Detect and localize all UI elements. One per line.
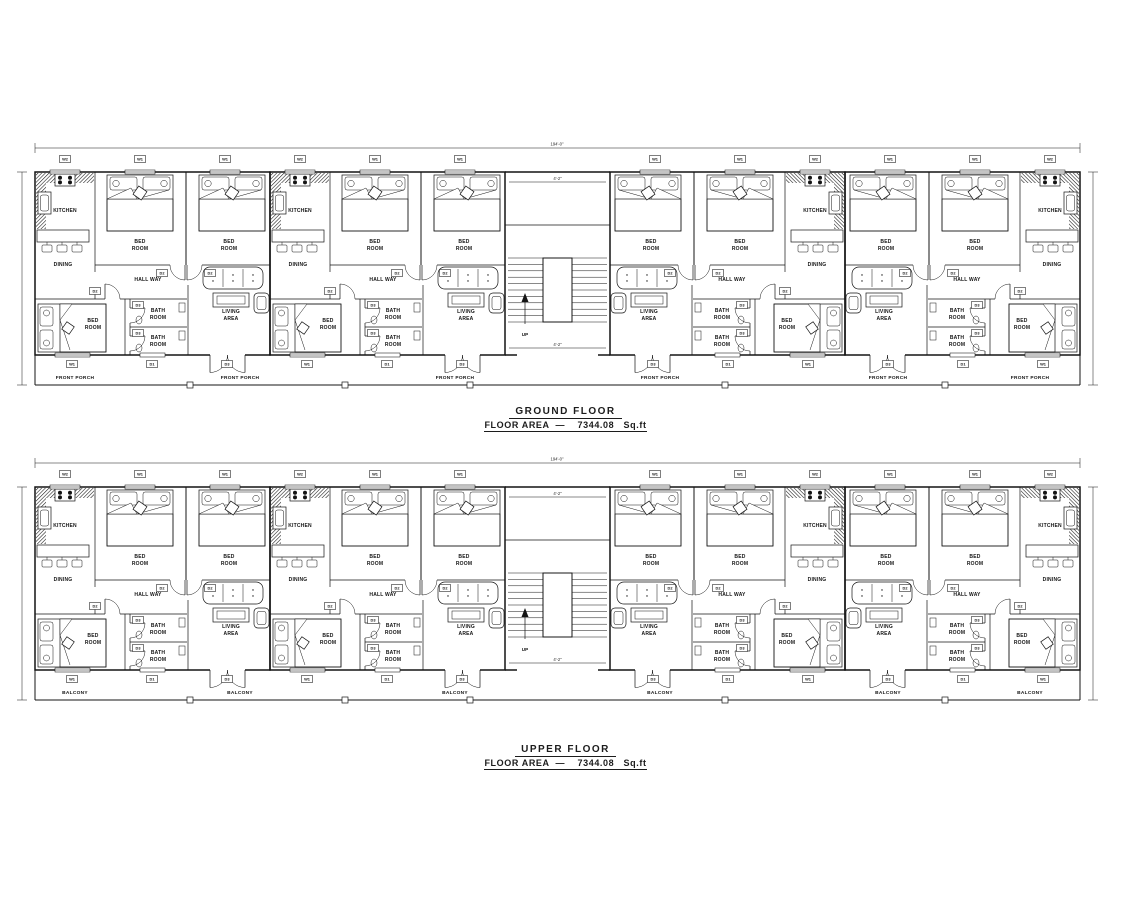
svg-text:W1: W1 xyxy=(69,362,76,367)
room-label-bathroom: ROOM xyxy=(949,342,965,348)
svg-text:D3: D3 xyxy=(225,677,231,682)
door-tag-d2: D2 xyxy=(1015,288,1026,295)
room-label-kitchen: KITCHEN xyxy=(53,523,77,529)
room-label-hallway: HALL WAY xyxy=(953,277,981,283)
svg-text:D3: D3 xyxy=(651,362,657,367)
svg-text:W1: W1 xyxy=(887,472,894,477)
room-label-living: LIVING xyxy=(875,624,893,630)
room-label-bathroom: BATH xyxy=(386,623,401,629)
svg-text:D1: D1 xyxy=(385,677,391,682)
room-label-bathroom: BATH xyxy=(386,650,401,656)
svg-text:D2: D2 xyxy=(783,289,789,294)
svg-text:D2: D2 xyxy=(951,586,957,591)
floor-area-value: 7344.08 xyxy=(578,420,615,432)
room-label-bedroom: BED xyxy=(880,239,891,245)
window-tag-w2: W2 xyxy=(1045,156,1056,163)
floor-title: GROUND FLOOR xyxy=(509,406,621,419)
ground-floor-title-block: GROUND FLOOR FLOOR AREA — 7344.08 Sq.ft xyxy=(433,401,698,430)
svg-text:D2: D2 xyxy=(328,289,334,294)
room-label-bathroom: ROOM xyxy=(714,630,730,636)
window-tag-w1: W1 xyxy=(220,156,231,163)
room-label-bedroom: BED xyxy=(134,239,145,245)
room-label-bedroom: ROOM xyxy=(367,246,383,252)
door-tag-d2: D2 xyxy=(325,603,336,610)
window-tag-w1: W1 xyxy=(370,471,381,478)
window-tag-w2: W2 xyxy=(295,471,306,478)
room-label-bedroom: ROOM xyxy=(132,561,148,567)
room-label-kitchen: KITCHEN xyxy=(53,208,77,214)
plan-canvas: UP 4'-2" 4'-2" 194'-0" xyxy=(0,0,1140,912)
floor-area-unit: Sq.ft xyxy=(624,758,647,770)
room-label-living: LIVING xyxy=(640,309,658,315)
room-label-bedroom: BED xyxy=(1016,633,1027,639)
svg-text:D2: D2 xyxy=(716,586,722,591)
window-tag-w1: W1 xyxy=(67,361,78,368)
window-tag-w1: W1 xyxy=(735,471,746,478)
room-label-bedroom: ROOM xyxy=(85,640,101,646)
room-label-bedroom: ROOM xyxy=(221,246,237,252)
floor-frame xyxy=(17,457,1098,704)
room-label-bathroom: ROOM xyxy=(150,342,166,348)
room-label-dining: DINING xyxy=(289,262,308,268)
svg-text:D3: D3 xyxy=(371,618,377,623)
door-tag-d3: D3 xyxy=(883,361,894,368)
room-label-dining: DINING xyxy=(54,262,73,268)
room-label-living: LIVING xyxy=(875,309,893,315)
door-tag-d3: D3 xyxy=(133,617,144,624)
svg-text:D1: D1 xyxy=(385,362,391,367)
room-label-kitchen: KITCHEN xyxy=(288,523,312,529)
room-label-dining: DINING xyxy=(54,577,73,583)
room-label-bathroom: BATH xyxy=(950,335,965,341)
room-label-bedroom: BED xyxy=(781,318,792,324)
door-tag-d3: D3 xyxy=(972,645,983,652)
door-tag-d3: D3 xyxy=(972,302,983,309)
room-label-bedroom: BED xyxy=(223,554,234,560)
room-label-living: AREA xyxy=(459,316,474,322)
room-label-bathroom: BATH xyxy=(715,623,730,629)
room-label-bedroom: ROOM xyxy=(967,561,983,567)
room-label-bedroom: ROOM xyxy=(320,640,336,646)
room-label-bedroom: BED xyxy=(645,554,656,560)
svg-text:D2: D2 xyxy=(395,586,401,591)
svg-text:D1: D1 xyxy=(726,362,732,367)
room-label-hallway: HALL WAY xyxy=(134,277,162,283)
room-label-dining: DINING xyxy=(1043,577,1062,583)
door-tag-d1: D1 xyxy=(958,361,969,368)
floor-area-line: FLOOR AREA — 7344.08 Sq.ft xyxy=(433,758,698,768)
floor-area-label: FLOOR AREA — xyxy=(484,758,565,770)
door-tag-d3: D3 xyxy=(368,645,379,652)
window-tag-w1: W1 xyxy=(455,156,466,163)
room-label-bedroom: BED xyxy=(87,633,98,639)
svg-text:D3: D3 xyxy=(740,303,746,308)
room-label-hallway: HALL WAY xyxy=(718,592,746,598)
window-tag-w1: W1 xyxy=(370,156,381,163)
window-tag-w1: W1 xyxy=(220,471,231,478)
room-label-bedroom: ROOM xyxy=(456,561,472,567)
room-label-bathroom: BATH xyxy=(715,308,730,314)
window-tag-w1: W1 xyxy=(650,471,661,478)
svg-text:W2: W2 xyxy=(812,157,819,162)
window-tag-w1: W1 xyxy=(885,156,896,163)
porch-label: BALCONY xyxy=(647,690,673,696)
svg-text:W1: W1 xyxy=(1040,677,1047,682)
door-tag-d2: D2 xyxy=(665,585,676,592)
room-label-bedroom: BED xyxy=(734,554,745,560)
room-label-bathroom: BATH xyxy=(950,623,965,629)
door-tag-d1: D1 xyxy=(382,676,393,683)
room-label-bedroom: BED xyxy=(322,633,333,639)
room-label-kitchen: KITCHEN xyxy=(1038,208,1062,214)
room-label-bedroom: BED xyxy=(458,554,469,560)
window-tag-w2: W2 xyxy=(1045,471,1056,478)
svg-text:D3: D3 xyxy=(975,618,981,623)
door-tag-d3: D3 xyxy=(368,330,379,337)
door-tag-d3: D3 xyxy=(222,676,233,683)
door-tag-d3: D3 xyxy=(883,676,894,683)
floor-frame xyxy=(17,142,1098,389)
svg-text:D3: D3 xyxy=(886,677,892,682)
door-tag-d2: D2 xyxy=(780,603,791,610)
room-label-bedroom: ROOM xyxy=(967,246,983,252)
room-label-bedroom: ROOM xyxy=(132,246,148,252)
svg-text:W2: W2 xyxy=(1047,157,1054,162)
svg-text:W1: W1 xyxy=(972,157,979,162)
window-tag-w2: W2 xyxy=(810,471,821,478)
porch-label: FRONT PORCH xyxy=(221,375,260,381)
porch-label: BALCONY xyxy=(62,690,88,696)
room-label-bathroom: ROOM xyxy=(385,657,401,663)
door-tag-d3: D3 xyxy=(457,676,468,683)
svg-text:D3: D3 xyxy=(886,362,892,367)
room-label-bedroom: BED xyxy=(1016,318,1027,324)
room-label-hallway: HALL WAY xyxy=(369,277,397,283)
room-label-bedroom: ROOM xyxy=(779,640,795,646)
window-tag-w1: W1 xyxy=(67,676,78,683)
porch-label: BALCONY xyxy=(1017,690,1043,696)
svg-text:D2: D2 xyxy=(160,586,166,591)
porch-label: BALCONY xyxy=(875,690,901,696)
svg-text:W1: W1 xyxy=(805,362,812,367)
door-tag-d1: D1 xyxy=(723,676,734,683)
svg-text:D3: D3 xyxy=(136,303,142,308)
room-label-bathroom: BATH xyxy=(386,335,401,341)
svg-text:D3: D3 xyxy=(975,646,981,651)
room-label-dining: DINING xyxy=(1043,262,1062,268)
door-tag-d2: D2 xyxy=(205,270,216,277)
window-tag-w1: W1 xyxy=(803,361,814,368)
svg-text:W1: W1 xyxy=(652,472,659,477)
room-label-bedroom: BED xyxy=(369,239,380,245)
room-label-bedroom: ROOM xyxy=(1014,325,1030,331)
room-label-bedroom: BED xyxy=(87,318,98,324)
door-tag-d3: D3 xyxy=(737,330,748,337)
room-label-living: AREA xyxy=(459,631,474,637)
window-tag-w1: W1 xyxy=(455,471,466,478)
room-label-bathroom: ROOM xyxy=(385,630,401,636)
window-tag-w1: W1 xyxy=(970,156,981,163)
room-label-bedroom: ROOM xyxy=(85,325,101,331)
room-label-bedroom: BED xyxy=(369,554,380,560)
svg-text:D2: D2 xyxy=(93,604,99,609)
porch-label: FRONT PORCH xyxy=(56,375,95,381)
svg-text:D3: D3 xyxy=(136,646,142,651)
door-tag-d3: D3 xyxy=(133,302,144,309)
window-tag-w1: W1 xyxy=(1038,676,1049,683)
room-label-bedroom: ROOM xyxy=(643,246,659,252)
window-tag-w2: W2 xyxy=(295,156,306,163)
room-label-hallway: HALL WAY xyxy=(953,592,981,598)
window-tag-w1: W1 xyxy=(970,471,981,478)
svg-text:W2: W2 xyxy=(297,157,304,162)
room-label-bedroom: ROOM xyxy=(320,325,336,331)
room-label-living: LIVING xyxy=(457,624,475,630)
window-tag-w1: W1 xyxy=(302,361,313,368)
room-label-bathroom: BATH xyxy=(950,650,965,656)
door-tag-d2: D2 xyxy=(392,270,403,277)
door-tag-d3: D3 xyxy=(737,302,748,309)
door-tag-d3: D3 xyxy=(368,302,379,309)
window-tag-w1: W1 xyxy=(1038,361,1049,368)
svg-text:D2: D2 xyxy=(668,271,674,276)
room-label-bedroom: ROOM xyxy=(1014,640,1030,646)
floor-plan-sheet: UP 4'-2" 4'-2" 194'-0" xyxy=(0,0,1140,912)
svg-text:D3: D3 xyxy=(740,646,746,651)
room-label-living: AREA xyxy=(642,631,657,637)
room-label-bedroom: BED xyxy=(134,554,145,560)
svg-text:D2: D2 xyxy=(951,271,957,276)
porch-label: FRONT PORCH xyxy=(641,375,680,381)
room-label-bathroom: ROOM xyxy=(714,315,730,321)
room-label-bedroom: ROOM xyxy=(732,246,748,252)
room-label-dining: DINING xyxy=(808,577,827,583)
svg-text:D2: D2 xyxy=(160,271,166,276)
svg-text:D1: D1 xyxy=(150,677,156,682)
svg-text:W1: W1 xyxy=(737,472,744,477)
svg-text:D3: D3 xyxy=(460,362,466,367)
door-tag-d3: D3 xyxy=(648,676,659,683)
porch-label: FRONT PORCH xyxy=(869,375,908,381)
door-tag-d3: D3 xyxy=(457,361,468,368)
door-tag-d2: D2 xyxy=(90,288,101,295)
svg-text:W2: W2 xyxy=(62,472,69,477)
room-label-bathroom: BATH xyxy=(950,308,965,314)
door-tag-d3: D3 xyxy=(737,617,748,624)
room-label-bathroom: BATH xyxy=(715,335,730,341)
svg-text:D2: D2 xyxy=(783,604,789,609)
window-tag-w1: W1 xyxy=(803,676,814,683)
room-label-dining: DINING xyxy=(289,577,308,583)
window-tag-w1: W1 xyxy=(135,156,146,163)
svg-text:W1: W1 xyxy=(737,157,744,162)
svg-text:D1: D1 xyxy=(726,677,732,682)
svg-text:W1: W1 xyxy=(222,157,229,162)
room-label-bedroom: BED xyxy=(969,554,980,560)
porch-label: FRONT PORCH xyxy=(436,375,475,381)
door-tag-d3: D3 xyxy=(648,361,659,368)
door-tag-d2: D2 xyxy=(713,270,724,277)
door-tag-d2: D2 xyxy=(440,585,451,592)
door-tag-d1: D1 xyxy=(723,361,734,368)
room-label-bedroom: BED xyxy=(223,239,234,245)
room-label-bedroom: BED xyxy=(322,318,333,324)
room-label-living: LIVING xyxy=(457,309,475,315)
svg-text:D2: D2 xyxy=(395,271,401,276)
room-label-living: AREA xyxy=(642,316,657,322)
svg-text:D3: D3 xyxy=(136,618,142,623)
room-label-living: LIVING xyxy=(222,309,240,315)
window-tag-w2: W2 xyxy=(810,156,821,163)
room-label-bedroom: BED xyxy=(969,239,980,245)
door-tag-d2: D2 xyxy=(392,585,403,592)
window-tag-w1: W1 xyxy=(302,676,313,683)
door-tag-d2: D2 xyxy=(325,288,336,295)
svg-text:D2: D2 xyxy=(93,289,99,294)
room-label-hallway: HALL WAY xyxy=(718,277,746,283)
door-tag-d2: D2 xyxy=(713,585,724,592)
floor-area-value: 7344.08 xyxy=(578,758,615,770)
svg-text:D3: D3 xyxy=(975,303,981,308)
room-label-kitchen: KITCHEN xyxy=(803,523,827,529)
room-label-bathroom: ROOM xyxy=(150,657,166,663)
door-tag-d1: D1 xyxy=(382,361,393,368)
room-label-bathroom: ROOM xyxy=(150,630,166,636)
svg-text:W1: W1 xyxy=(137,472,144,477)
svg-text:D1: D1 xyxy=(961,677,967,682)
svg-text:D3: D3 xyxy=(740,618,746,623)
room-label-bathroom: BATH xyxy=(715,650,730,656)
svg-text:D2: D2 xyxy=(328,604,334,609)
room-label-dining: DINING xyxy=(808,262,827,268)
door-tag-d2: D2 xyxy=(90,603,101,610)
svg-text:W1: W1 xyxy=(972,472,979,477)
room-label-living: AREA xyxy=(877,631,892,637)
svg-text:D2: D2 xyxy=(208,586,214,591)
floor-title: UPPER FLOOR xyxy=(515,744,616,757)
svg-text:D1: D1 xyxy=(150,362,156,367)
room-label-bedroom: ROOM xyxy=(878,246,894,252)
room-label-bedroom: ROOM xyxy=(456,246,472,252)
svg-text:W1: W1 xyxy=(805,677,812,682)
door-tag-d2: D2 xyxy=(1015,603,1026,610)
svg-text:D2: D2 xyxy=(443,586,449,591)
door-tag-d2: D2 xyxy=(780,288,791,295)
room-label-bathroom: ROOM xyxy=(949,657,965,663)
svg-text:D3: D3 xyxy=(460,677,466,682)
door-tag-d1: D1 xyxy=(147,361,158,368)
room-label-bathroom: BATH xyxy=(151,623,166,629)
floor-area-label: FLOOR AREA — xyxy=(484,420,565,432)
room-label-living: AREA xyxy=(224,631,239,637)
room-label-bathroom: ROOM xyxy=(385,342,401,348)
floor-area-line: FLOOR AREA — 7344.08 Sq.ft xyxy=(433,420,698,430)
room-label-bedroom: BED xyxy=(458,239,469,245)
room-label-kitchen: KITCHEN xyxy=(1038,523,1062,529)
svg-text:D3: D3 xyxy=(136,331,142,336)
svg-text:D2: D2 xyxy=(208,271,214,276)
room-label-living: LIVING xyxy=(222,624,240,630)
svg-text:W1: W1 xyxy=(887,157,894,162)
svg-text:W1: W1 xyxy=(304,677,311,682)
door-tag-d3: D3 xyxy=(133,330,144,337)
porch-label: BALCONY xyxy=(227,690,253,696)
room-label-bedroom: ROOM xyxy=(878,561,894,567)
porch-label: BALCONY xyxy=(442,690,468,696)
room-label-bathroom: ROOM xyxy=(949,630,965,636)
svg-text:W2: W2 xyxy=(62,157,69,162)
room-label-bathroom: ROOM xyxy=(150,315,166,321)
window-tag-w1: W1 xyxy=(650,156,661,163)
porch-label: FRONT PORCH xyxy=(1011,375,1050,381)
door-tag-d2: D2 xyxy=(205,585,216,592)
svg-text:W1: W1 xyxy=(304,362,311,367)
room-label-bedroom: BED xyxy=(880,554,891,560)
door-tag-d1: D1 xyxy=(958,676,969,683)
window-tag-w2: W2 xyxy=(60,471,71,478)
svg-text:W1: W1 xyxy=(372,157,379,162)
door-tag-d2: D2 xyxy=(900,585,911,592)
room-label-bathroom: ROOM xyxy=(385,315,401,321)
room-label-hallway: HALL WAY xyxy=(369,592,397,598)
window-tag-w1: W1 xyxy=(135,471,146,478)
door-tag-d2: D2 xyxy=(948,270,959,277)
door-tag-d2: D2 xyxy=(157,585,168,592)
svg-text:D2: D2 xyxy=(903,586,909,591)
svg-text:W2: W2 xyxy=(812,472,819,477)
door-tag-d1: D1 xyxy=(147,676,158,683)
svg-text:D3: D3 xyxy=(371,646,377,651)
svg-text:W1: W1 xyxy=(137,157,144,162)
svg-text:W1: W1 xyxy=(457,157,464,162)
window-tag-w1: W1 xyxy=(735,156,746,163)
door-tag-d2: D2 xyxy=(440,270,451,277)
svg-text:W1: W1 xyxy=(69,677,76,682)
svg-text:D3: D3 xyxy=(740,331,746,336)
svg-text:D3: D3 xyxy=(975,331,981,336)
room-label-bedroom: ROOM xyxy=(221,561,237,567)
door-tag-d2: D2 xyxy=(157,270,168,277)
svg-text:W1: W1 xyxy=(1040,362,1047,367)
room-label-living: LIVING xyxy=(640,624,658,630)
room-label-kitchen: KITCHEN xyxy=(803,208,827,214)
room-label-bathroom: ROOM xyxy=(714,657,730,663)
room-label-living: AREA xyxy=(224,316,239,322)
svg-text:D1: D1 xyxy=(961,362,967,367)
floor-area-unit: Sq.ft xyxy=(624,420,647,432)
room-label-bedroom: ROOM xyxy=(779,325,795,331)
room-label-bedroom: BED xyxy=(781,633,792,639)
svg-text:D2: D2 xyxy=(716,271,722,276)
svg-text:D3: D3 xyxy=(225,362,231,367)
room-label-bathroom: ROOM xyxy=(949,315,965,321)
door-tag-d3: D3 xyxy=(737,645,748,652)
door-tag-d2: D2 xyxy=(665,270,676,277)
room-label-hallway: HALL WAY xyxy=(134,592,162,598)
svg-text:D2: D2 xyxy=(668,586,674,591)
svg-text:D2: D2 xyxy=(903,271,909,276)
svg-text:W1: W1 xyxy=(457,472,464,477)
room-label-kitchen: KITCHEN xyxy=(288,208,312,214)
room-label-bathroom: BATH xyxy=(151,335,166,341)
room-label-bedroom: ROOM xyxy=(367,561,383,567)
door-tag-d2: D2 xyxy=(948,585,959,592)
upper-floor-title-block: UPPER FLOOR FLOOR AREA — 7344.08 Sq.ft xyxy=(433,739,698,768)
room-label-bathroom: BATH xyxy=(386,308,401,314)
door-tag-d3: D3 xyxy=(972,330,983,337)
svg-text:W2: W2 xyxy=(297,472,304,477)
room-label-bathroom: BATH xyxy=(151,650,166,656)
